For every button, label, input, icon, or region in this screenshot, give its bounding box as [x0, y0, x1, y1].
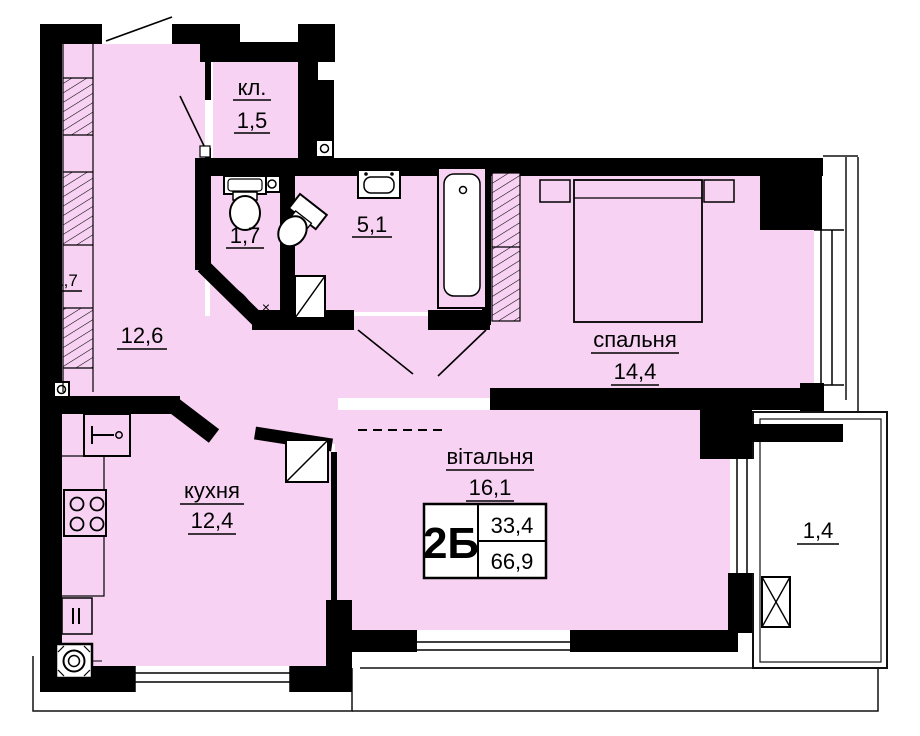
living-room-name: вітальня	[446, 444, 533, 469]
ac-unit-icon	[762, 577, 790, 627]
bedroom-window	[814, 230, 844, 385]
wall-segment	[760, 158, 822, 230]
hall-wardrobe-strip	[63, 44, 93, 392]
wall-segment	[195, 158, 211, 270]
unit-living-area: 33,4	[491, 513, 534, 538]
wall-segment	[331, 452, 337, 602]
living-room-window	[415, 634, 570, 656]
bath-sink-icon	[358, 170, 400, 198]
floor-plan: кл. 1,5 1,7 5,1 × спальня 14,4 12,6 1,7 …	[0, 0, 920, 736]
nightstand	[540, 180, 570, 202]
unit-info-card: 2Б 33,4 66,9	[423, 504, 546, 578]
door-jamb	[200, 146, 210, 157]
wall-segment	[490, 388, 822, 410]
bedroom-name: спальня	[593, 327, 677, 352]
wall-segment	[728, 400, 752, 459]
kitchen-sink-icon	[84, 414, 130, 456]
living-room-area: 16,1	[469, 475, 512, 500]
vent-shaft-icon	[316, 140, 333, 157]
wall-segment	[750, 424, 843, 442]
balcony-area: 1,4	[803, 518, 834, 543]
wall-segment	[728, 573, 752, 633]
wall-segment	[800, 383, 824, 411]
wc-area: 1,7	[230, 223, 261, 248]
kitchen-area: 12,4	[191, 508, 234, 533]
wall-segment	[335, 630, 417, 652]
vent-shaft-icon	[54, 382, 69, 397]
entrance-door-leaf	[106, 17, 172, 41]
bathroom-area: 5,1	[357, 212, 388, 237]
wall-segment	[172, 24, 202, 44]
closet-name: кл.	[238, 75, 267, 100]
wall-segment	[40, 24, 62, 692]
closet-area: 1,5	[237, 108, 268, 133]
duct-icon	[286, 440, 328, 482]
wall-segment	[290, 666, 336, 692]
hall-wardrobe-area: 1,7	[54, 271, 78, 290]
wall-segment	[40, 396, 180, 414]
stove-icon	[64, 490, 106, 536]
fridge-icon	[62, 598, 92, 634]
wall-niche	[240, 22, 298, 42]
wall-segment	[205, 60, 211, 100]
bedroom-area: 14,4	[614, 359, 657, 384]
unit-number: 2Б	[423, 519, 479, 568]
nightstand	[704, 180, 734, 202]
wall-segment	[700, 410, 730, 459]
hallway-area: 12,6	[121, 323, 164, 348]
wall-segment	[570, 630, 738, 652]
bedroom-wardrobe-hatch	[492, 173, 520, 321]
shower-tray-icon	[295, 276, 325, 318]
door-x-mark: ×	[262, 299, 270, 315]
living-room-side-window	[730, 459, 756, 573]
kitchen-name: кухня	[184, 478, 240, 503]
bathtub-icon	[438, 168, 486, 308]
unit-total-area: 66,9	[491, 549, 534, 574]
wall-segment	[428, 310, 490, 330]
kitchen-window	[135, 666, 290, 692]
